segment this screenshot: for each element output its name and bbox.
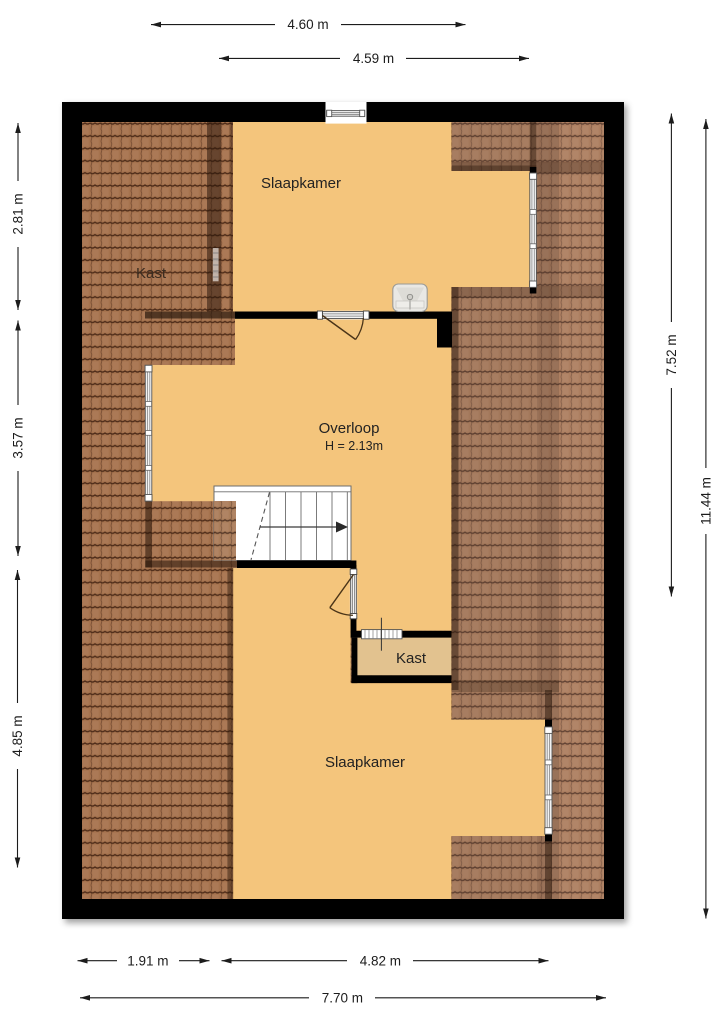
svg-text:Slaapkamer: Slaapkamer <box>261 175 341 192</box>
svg-text:Overloop: Overloop <box>319 420 380 437</box>
svg-text:Kast: Kast <box>396 650 427 667</box>
svg-text:11.44 m: 11.44 m <box>699 477 714 525</box>
svg-text:4.82 m: 4.82 m <box>360 953 401 968</box>
svg-text:4.60 m: 4.60 m <box>287 17 328 32</box>
svg-text:Slaapkamer: Slaapkamer <box>325 754 405 771</box>
svg-text:2.81 m: 2.81 m <box>11 193 26 234</box>
svg-text:4.85 m: 4.85 m <box>10 715 25 756</box>
svg-text:1.91 m: 1.91 m <box>127 953 168 968</box>
svg-text:3.57 m: 3.57 m <box>11 417 26 458</box>
svg-text:4.59 m: 4.59 m <box>353 51 394 66</box>
svg-text:7.52 m: 7.52 m <box>664 334 679 375</box>
svg-text:Kast: Kast <box>136 265 167 282</box>
svg-text:7.70 m: 7.70 m <box>322 990 363 1005</box>
svg-text:H = 2.13m: H = 2.13m <box>325 439 383 453</box>
